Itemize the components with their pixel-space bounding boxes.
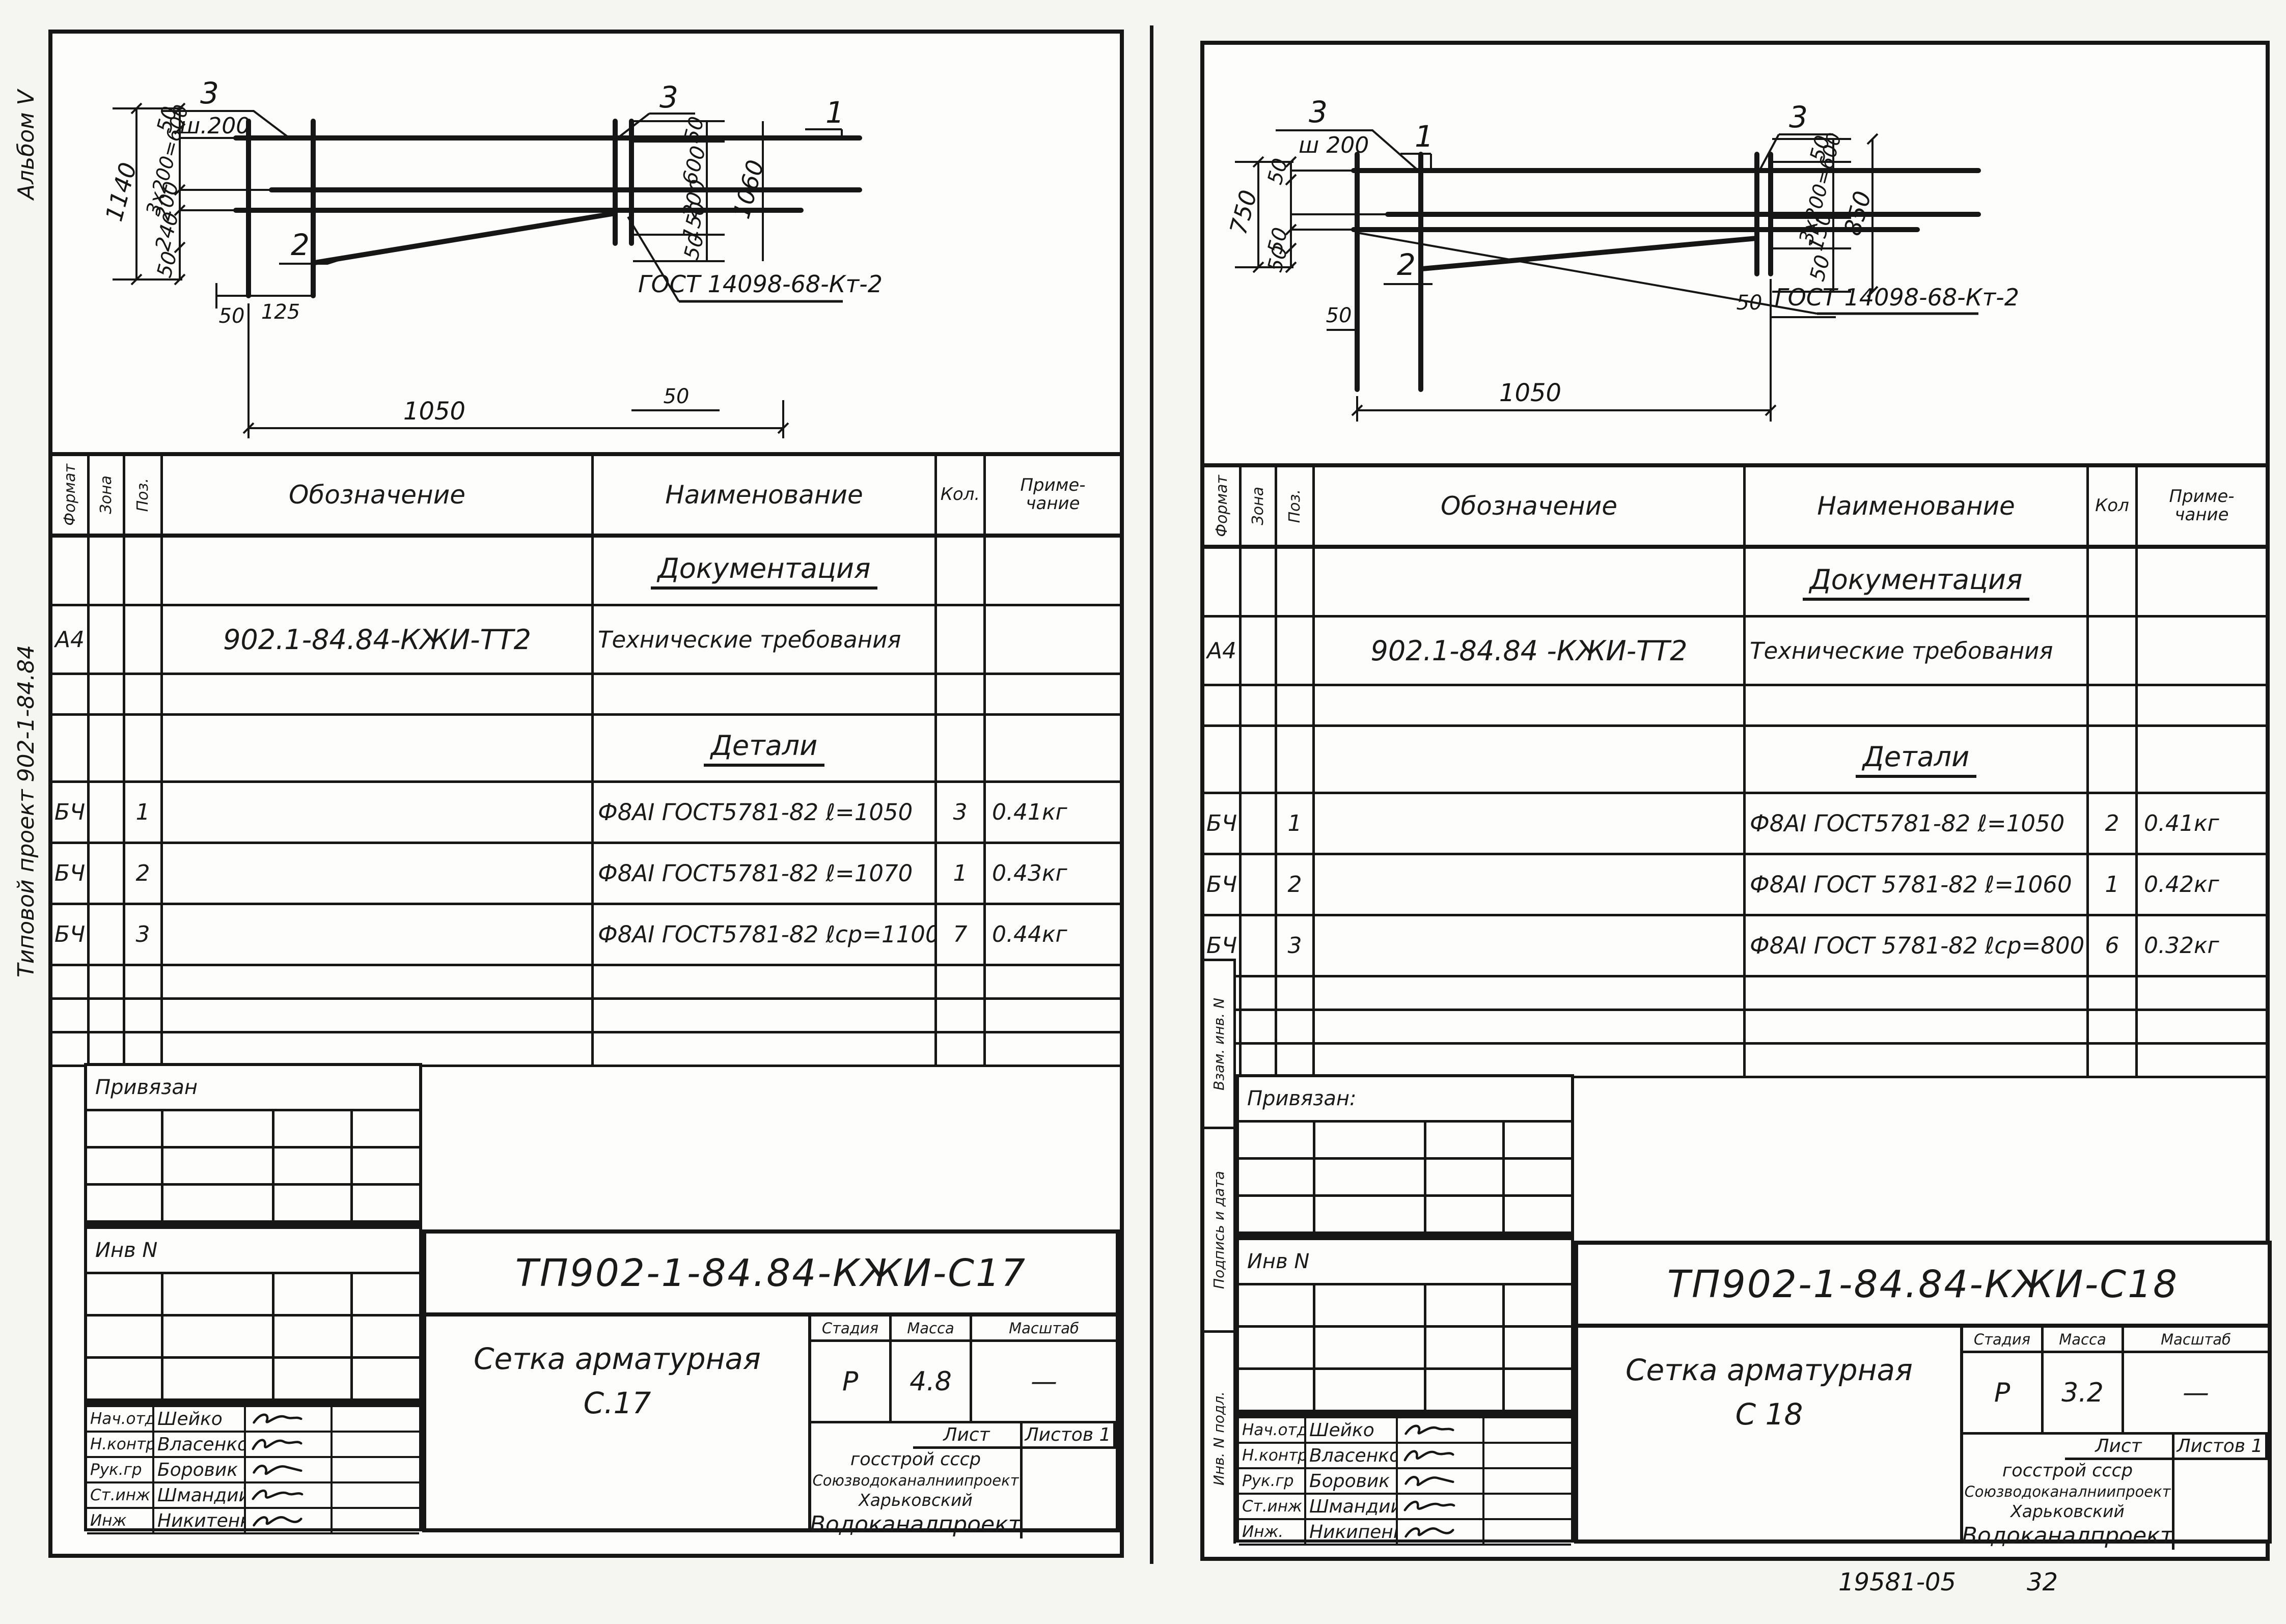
- privyazan-grid: Привязан: [84, 1063, 422, 1226]
- sheets-label: Листов 1: [1023, 1423, 1116, 1449]
- inv-podl-cell: Инв. N подл.: [1204, 1330, 1236, 1544]
- doc-number: ТП902-1-84.84-КЖИ-С18: [1578, 1245, 2268, 1328]
- dim-bottom-overall: 1050: [1499, 379, 1561, 407]
- sheets-label: Листов 1: [2174, 1435, 2268, 1460]
- spec-table-c18: Формат Зона Поз. Обозначение Наименовани…: [1204, 463, 2266, 1078]
- inv-label: Инв N: [87, 1229, 419, 1274]
- drawing-title: Сетка арматурная С 18: [1578, 1328, 1963, 1539]
- footer-page-number: 32: [2027, 1568, 2058, 1597]
- col-oboz: Обозначение: [163, 456, 594, 538]
- pos-label-3b: 3: [659, 80, 678, 115]
- privyazan-grid: Привязан:: [1236, 1074, 1574, 1237]
- section-detali: Детали: [1856, 741, 1977, 778]
- pos-label-3: 3: [1309, 95, 1328, 129]
- signature: [246, 1407, 333, 1433]
- signature: [246, 1433, 333, 1458]
- mass-value: 4.8: [892, 1342, 972, 1423]
- dim-left-overall: 750: [1224, 187, 1262, 237]
- bent-bar: [315, 213, 615, 263]
- pos-label-3: 3: [200, 76, 219, 110]
- signature: [1398, 1520, 1484, 1546]
- mesh-drawing-c17: 1140 50 3х200=600 200 240 50 50 600 200 …: [52, 34, 1120, 452]
- spec-table-c17: Формат Зона Поз. Обозначение Наименовани…: [52, 452, 1120, 1067]
- pos-label-2: 2: [1397, 247, 1416, 282]
- drawing-title: Сетка арматурная С.17: [426, 1317, 811, 1528]
- organization: госстрой ссср Союзводоканалниипроект Хар…: [1963, 1460, 2174, 1550]
- scanned-blueprint-sheet: { "sheet": { "album_label": "Альбом V", …: [0, 0, 2286, 1624]
- privyazan-label: Привязан: [87, 1066, 419, 1111]
- organization: госстрой ссср Союзводоканалниипроект Хар…: [811, 1449, 1023, 1538]
- vzam-inv-cell: Взам. инв. N: [1204, 959, 1236, 1127]
- sheet-label: Лист: [913, 1423, 1023, 1449]
- stage-value: Р: [1963, 1353, 2044, 1435]
- footer-doc-number: 19581-05: [1838, 1568, 1956, 1597]
- pos-label-1: 1: [1415, 119, 1434, 154]
- section-detali: Детали: [704, 730, 825, 767]
- signature: [246, 1483, 333, 1509]
- gost-callout: ГОСТ 14098-68-Кт-2: [1775, 284, 2019, 311]
- podpis-data-cell: Подпись и дата: [1204, 1127, 1236, 1330]
- doc-number: ТП902-1-84.84-КЖИ-С17: [426, 1234, 1116, 1317]
- scale-value: —: [972, 1342, 1116, 1423]
- svg-text:50: 50: [153, 249, 182, 280]
- signature: [246, 1509, 333, 1534]
- dim-bottom-overall: 1050: [403, 397, 465, 426]
- col-naim: Наименование: [1746, 467, 2089, 549]
- stage-value: Р: [811, 1342, 892, 1423]
- pos-label-3b: 3: [1789, 100, 1808, 134]
- inv-grid: Инв N: [84, 1226, 422, 1404]
- signature: [1398, 1418, 1484, 1444]
- svg-text:50: 50: [219, 304, 245, 328]
- pos-label-1: 1: [825, 95, 844, 130]
- pos-label-2: 2: [291, 228, 310, 262]
- privyazan-label: Привязан:: [1239, 1077, 1571, 1123]
- signature: [1398, 1495, 1484, 1520]
- album-label: Альбом V: [13, 32, 39, 200]
- section-dokumentaciya: Документация: [651, 552, 878, 590]
- signature-block-c17: Нач.отдШейко Н.контрВласенко Рук.грБоров…: [84, 1404, 422, 1531]
- title-block-c18: ТП902-1-84.84-КЖИ-С18 Сетка арматурная С…: [1574, 1241, 2272, 1544]
- section-dokumentaciya: Документация: [1803, 564, 2030, 601]
- signature: [1398, 1444, 1484, 1469]
- sheet-c17: 1140 50 3х200=600 200 240 50 50 600 200 …: [48, 30, 1124, 1558]
- sheet-label: Лист: [2065, 1435, 2174, 1460]
- svg-text:50: 50: [1806, 253, 1835, 284]
- col-naim: Наименование: [594, 456, 937, 538]
- mass-value: 3.2: [2044, 1353, 2124, 1435]
- scale-value: —: [2124, 1353, 2268, 1435]
- col-oboz: Обозначение: [1315, 467, 1746, 549]
- center-divider: [1150, 25, 1153, 1564]
- title-block-c17: ТП902-1-84.84-КЖИ-С17 Сетка арматурная С…: [422, 1229, 1120, 1532]
- svg-text:50: 50: [1326, 304, 1352, 327]
- sheet-c18: 750 50 50 50 50 3х200=600 150 50 850 50 …: [1200, 41, 2270, 1561]
- step-label: ш.200: [180, 113, 250, 139]
- inv-grid: Инв N: [1236, 1237, 1574, 1415]
- svg-text:125: 125: [261, 300, 300, 324]
- project-label: Типовой проект 902-1-84.84: [13, 316, 39, 977]
- signature: [246, 1458, 333, 1483]
- mesh-drawing-c18: 750 50 50 50 50 3х200=600 150 50 850 50 …: [1204, 45, 2266, 463]
- inv-label: Инв N: [1239, 1240, 1571, 1285]
- step-label: ш 200: [1299, 132, 1369, 158]
- svg-text:50: 50: [664, 385, 690, 408]
- signature: [1398, 1469, 1484, 1495]
- signature-block-c18: Нач.отдШейко Н.контрВласенко Рук.грБоров…: [1236, 1415, 1574, 1543]
